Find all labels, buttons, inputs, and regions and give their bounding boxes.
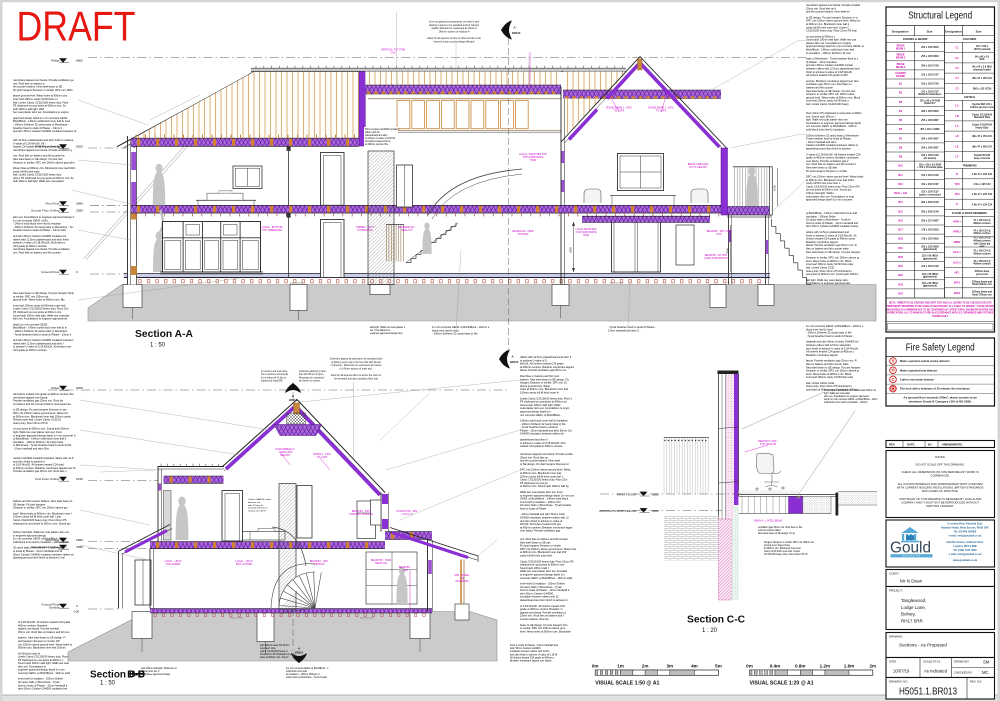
svg-text:BR013: BR013 xyxy=(512,31,521,35)
svg-text:(galvanised): (galvanised) xyxy=(923,276,937,279)
svg-text:skim 50mm Celotex GA4000 insul: skim 50mm Celotex GA4000 insulation bet xyxy=(18,687,67,691)
svg-text:Ground Floor Ceiling: Ground Floor Ceiling xyxy=(31,208,60,212)
svg-text:B11: B11 xyxy=(898,174,903,177)
svg-text:DRAFT: DRAFT xyxy=(17,3,136,50)
svg-text:NOTE: TIMBER TO BE GRADED AND: NOTE: TIMBER TO BE GRADED AND KEPT DRY A… xyxy=(889,302,992,305)
svg-text:1m: 1m xyxy=(617,663,624,668)
svg-text:400mm centres: 400mm centres xyxy=(973,263,991,266)
svg-text:LAM: LAM xyxy=(402,569,407,572)
svg-text:TO LAPS: TO LAPS xyxy=(614,110,625,113)
svg-text:B22: B22 xyxy=(898,274,903,277)
svg-text:+ 150 x 10 bolted plate: + 150 x 10 bolted plate xyxy=(917,166,943,169)
svg-text:at 900mm ctrs. Blockwork inner: at 900mm ctrs. Blockwork inner leaf xyxy=(764,547,801,550)
svg-text:counter battens. New ste: counter battens. New ste xyxy=(520,617,549,621)
svg-text:(galvanised): (galvanised) xyxy=(923,248,937,251)
svg-text:e-mail: info@goulduk.co.uk: e-mail: info@goulduk.co.uk xyxy=(949,535,982,538)
svg-text:New steel beam to SE design. F: New steel beam to SE design. Fix joist h… xyxy=(806,250,861,254)
svg-text:254 x 146 UB37: 254 x 146 UB37 xyxy=(921,137,939,140)
svg-text:B12: B12 xyxy=(898,183,903,186)
svg-text:in 140mm system of math and.: in 140mm system of math and. xyxy=(340,367,373,370)
svg-text:S: S xyxy=(892,359,895,364)
svg-text:BR013: BR013 xyxy=(289,398,298,402)
svg-text:KIT BRACING: KIT BRACING xyxy=(357,229,373,232)
svg-text:to engineer approved design: to engineer approved design xyxy=(141,673,171,676)
svg-text:solid block inner leaf b) Insu: solid block inner leaf b) Insulation - 1… xyxy=(13,540,69,544)
svg-text:LA: LA xyxy=(955,105,959,108)
svg-text:COMMENCED.: COMMENCED. xyxy=(930,474,950,478)
svg-text:deep concrete: deep concrete xyxy=(974,157,991,160)
svg-text:Designation: Designation xyxy=(945,30,962,34)
svg-text:x 150 x 47: x 150 x 47 xyxy=(401,513,413,516)
svg-text:B14: B14 xyxy=(898,201,903,204)
svg-text:B18: B18 xyxy=(898,238,903,241)
svg-text:fascia. Provide ventilation ga: fascia. Provide ventilation gap 25mm mi xyxy=(520,368,566,372)
svg-text:External Wall: External Wall xyxy=(610,281,623,284)
svg-text:skim set. Foundations to engin: skim set. Foundations to engineer approv… xyxy=(13,317,68,321)
svg-text:360mm centres: 360mm centres xyxy=(973,253,991,256)
svg-text:T2/3: T2/3 xyxy=(954,183,960,186)
svg-text:TOP TRIM 2M: TOP TRIM 2M xyxy=(760,443,776,446)
svg-text:fixed to studs d) Plaste: fixed to studs d) Plaste xyxy=(520,507,547,511)
svg-text:2 No x 195 C24: 2 No x 195 C24 xyxy=(974,183,992,186)
svg-text:UC37 (sashed): UC37 (sashed) xyxy=(974,48,991,51)
svg-text:0m: 0m xyxy=(592,663,599,668)
svg-text:b) Insulation - 100mm Dritherm: b) Insulation - 100mm Dritherm 3 xyxy=(286,673,320,676)
svg-text:PROJECT.: PROJECT. xyxy=(889,589,903,593)
svg-text:to SE design. Fix joist hanger: to SE design. Fix joist hangers Simpson … xyxy=(520,462,569,466)
svg-text:level. Weep holes at 900mm ctr: level. Weep holes at 900mm ctrs. Blockwo… xyxy=(520,629,572,633)
svg-text:Size: Size xyxy=(976,30,982,34)
svg-text:B24: B24 xyxy=(898,292,903,295)
svg-text:U-value of 0.18 W: U-value of 0.18 W xyxy=(248,511,266,513)
svg-text:152 x 152 UC30: 152 x 152 UC30 xyxy=(921,174,939,177)
svg-text:152 x 152 UC30: 152 x 152 UC30 xyxy=(921,83,939,86)
svg-text:1.2m: 1.2m xyxy=(820,663,830,668)
svg-text:Mains operated heat detector: Mains operated heat detector xyxy=(900,368,937,372)
svg-text:on posi joists at 600mm ctrs.: on posi joists at 600mm ctrs. Sound quil… xyxy=(824,389,877,392)
svg-text:254 x 146 UB43: 254 x 146 UB43 xyxy=(921,46,939,49)
svg-text:Hanifton House, Addision Row,: Hanifton House, Addision Row, xyxy=(946,541,983,544)
svg-text:b) Insulation - 100mm Dritherm: b) Insulation - 100mm Dritherm 32 cavi xyxy=(806,51,851,55)
svg-text:HF1: HF1 xyxy=(955,272,960,275)
svg-text:leaf 100mm cavity full fill br: leaf 100mm cavity full fill bric xyxy=(260,644,290,647)
svg-text:cavity batts c) Membrane - Tyv: cavity batts c) Membrane - Tyvek breath xyxy=(286,676,328,679)
svg-text:Section C-C: Section C-C xyxy=(687,615,745,626)
svg-text:0: 0 xyxy=(76,604,78,608)
svg-text:plasterboard and skim finish t: plasterboard and skim finish to achieve … xyxy=(13,556,65,560)
svg-text:COLUMNS: COLUMNS xyxy=(963,37,977,41)
svg-text:Fix joist hangers Simpson or s: Fix joist hangers Simpson or similar. xyxy=(806,169,848,173)
svg-text:breather fixed to studs d) Pla: breather fixed to studs d) Plaster - 13m… xyxy=(13,228,66,232)
svg-text:b/w a number permanently: b/w a number permanently xyxy=(261,373,289,376)
svg-text:TRIM: TRIM xyxy=(583,234,589,237)
svg-text:B23: B23 xyxy=(898,283,903,286)
svg-text:over: over xyxy=(979,245,984,248)
svg-text:Carbon monoxide detector: Carbon monoxide detector xyxy=(900,378,934,382)
svg-text:solid block inner leaf b) Insu: solid block inner leaf b) Insulation xyxy=(806,128,845,132)
svg-text:treated C24 grade at 400mm cen: treated C24 grade at 400mm centres. xyxy=(520,444,563,448)
svg-text:Outside: Outside xyxy=(49,606,60,610)
svg-text:Tanglewood,: Tanglewood, xyxy=(901,598,926,603)
svg-text:254 x 146 UB43: 254 x 146 UB43 xyxy=(921,55,939,58)
svg-text:GROUND FLOOR CEILING: GROUND FLOOR CEILING xyxy=(599,509,637,513)
svg-text:and felt counter batten: and felt counter batten xyxy=(758,529,782,532)
svg-text:Catnic CG110/100 heavy d: Catnic CG110/100 heavy d xyxy=(260,650,288,653)
svg-text:Lodge Lane,: Lodge Lane, xyxy=(901,605,926,610)
svg-text:WRITTEN CONSENT.: WRITTEN CONSENT. xyxy=(926,504,954,508)
svg-text:50mm Celotex GA4000 insulation: 50mm Celotex GA4000 insulation xyxy=(365,128,400,131)
svg-text:Harwich Heath, West Sussex, RH: Harwich Heath, West Sussex, RH16 1HE xyxy=(941,527,989,530)
svg-text:Tel: (01444) 452800: Tel: (01444) 452800 xyxy=(954,531,977,534)
svg-text:1 : 50: 1 : 50 xyxy=(150,343,166,349)
svg-text:CHECKED BY.: CHECKED BY. xyxy=(954,671,973,675)
svg-text:9300: 9300 xyxy=(76,386,83,390)
svg-text:Standard Duty: Standard Duty xyxy=(974,116,991,119)
svg-text:LC: LC xyxy=(955,125,959,128)
svg-text:between raft: between raft xyxy=(248,501,260,504)
svg-text:FRAMES & BEAMS: FRAMES & BEAMS xyxy=(903,37,928,41)
svg-text:178 x 152 UB19: 178 x 152 UB19 xyxy=(921,229,939,232)
svg-text:framed to ask you (meeting) ef: framed to ask you (meeting) effected xyxy=(434,40,475,43)
svg-text:B13a + 13b: B13a + 13b xyxy=(894,192,908,195)
svg-text:External Wall: External Wall xyxy=(360,617,373,620)
svg-text:skim 50mm Celotex GA4000 insul: skim 50mm Celotex GA4000 insulation betw… xyxy=(806,224,859,228)
svg-text:FABRICATION. ALL TO MANUFACTUR: FABRICATION. ALL TO MANUFACTURE IN ACCOR… xyxy=(887,312,994,315)
svg-text:MC: MC xyxy=(982,670,989,675)
svg-text:2 No: 2 No xyxy=(390,52,396,55)
svg-text:Welded/cranked/pos: Welded/cranked/pos xyxy=(918,93,942,96)
svg-text:SM: SM xyxy=(983,660,990,665)
svg-text:Steel 510mm ctrs: Steel 510mm ctrs xyxy=(972,283,992,286)
svg-text:Mains operated optical smoke d: Mains operated optical smoke detector xyxy=(900,359,950,363)
svg-text:2500: 2500 xyxy=(726,248,730,254)
svg-text:win before in system.: win before in system. xyxy=(299,380,321,383)
svg-text:plasterboard and skim finish t: plasterboard and skim finish to achieve xyxy=(806,147,851,151)
svg-text:-100: -100 xyxy=(73,609,79,613)
svg-text:2580: 2580 xyxy=(76,545,83,549)
svg-text:HC1-2: HC1-2 xyxy=(953,261,961,264)
svg-text:hangers Simpson or similar. DP: hangers Simpson or similar. DPC min 150m… xyxy=(764,541,814,544)
svg-text:2580: 2580 xyxy=(652,509,659,513)
svg-text:203 x 203 UC46: 203 x 203 UC46 xyxy=(921,210,939,213)
svg-text:ground level. Weep holes: ground level. Weep holes xyxy=(764,544,791,547)
svg-text:10/07/19: 10/07/19 xyxy=(893,669,910,674)
svg-text:C24 grade at 400mm centres.: C24 grade at 400mm centres. xyxy=(13,348,48,352)
svg-text:All timbers treated C24 grade: All timbers treated C24 grade at 400 xyxy=(806,73,848,77)
svg-text:WINDOW: WINDOW xyxy=(314,563,326,566)
svg-text:2m: 2m xyxy=(642,663,649,668)
svg-text:to be drawn all. At this to: to be drawn all. At this to xyxy=(261,376,287,379)
svg-text:approved design depth 1m min c: approved design depth 1m min concrete xyxy=(806,198,853,202)
svg-text:- Tyvek breather fixed to stud: - Tyvek breather fixed to studs d) Plast… xyxy=(806,334,854,338)
svg-text:Ridge: Ridge xyxy=(51,386,59,390)
svg-text:VISUAL SCALE 1:50 @ A1: VISUAL SCALE 1:50 @ A1 xyxy=(595,680,659,686)
svg-text:BEAM 4 - LINTEL BEAM: BEAM 4 - LINTEL BEAM xyxy=(754,520,782,523)
svg-text:Breather membrane lapped: Breather membrane lapped xyxy=(806,353,838,357)
svg-text:over fascia. Provide ventilati: over fascia. Provide ventilation gap xyxy=(520,529,561,533)
svg-text:Bolney,: Bolney, xyxy=(901,612,916,617)
svg-text:Breather membrane lapped over: Breather membrane lapped over fascia xyxy=(510,660,552,663)
svg-text:Simpson or similar. DPC min 15: Simpson or similar. DPC min 150mm above … xyxy=(13,506,68,510)
svg-text:RAF1: RAF1 xyxy=(954,282,961,285)
svg-text:External Wall: External Wall xyxy=(290,281,303,284)
svg-text:SHS: SHS xyxy=(980,58,985,61)
svg-text:1.6m: 1.6m xyxy=(844,663,854,668)
svg-text:Ridge: Ridge xyxy=(51,59,59,63)
svg-text:BR013: BR013 xyxy=(510,360,519,364)
svg-text:B10: B10 xyxy=(898,165,903,168)
svg-text:4 No 47 x 225 C24: 4 No 47 x 225 C24 xyxy=(972,203,993,206)
svg-text:Provide ventilation gap 25mm m: Provide ventilation gap 25mm min. Roof t… xyxy=(13,469,67,473)
svg-text:Ground Floor: Ground Floor xyxy=(41,270,59,274)
svg-text:LF: LF xyxy=(955,156,959,159)
svg-text:DO NOT SCALE OFF THIS DRAWING.: DO NOT SCALE OFF THIS DRAWING. xyxy=(916,463,965,467)
svg-text:Steel 275mm ctrs: Steel 275mm ctrs xyxy=(972,293,992,296)
svg-text:1500: 1500 xyxy=(773,185,777,191)
svg-text:outer leaf. Linte: outer leaf. Linte xyxy=(260,647,277,650)
svg-text:Celotex GA4000 insulat: Celotex GA4000 insulat xyxy=(248,498,271,501)
svg-text:152 x 152 UC37: 152 x 152 UC37 xyxy=(921,73,939,76)
svg-text:e-mail: info@goulduk.co.uk: e-mail: info@goulduk.co.uk xyxy=(949,553,982,556)
svg-text:TILE VERGE: TILE VERGE xyxy=(166,563,181,566)
svg-text:on battens and felt counter ba: on battens and felt counter battens. New… xyxy=(13,402,71,406)
svg-text:First Floor Ceiling: First Floor Ceiling xyxy=(35,477,60,481)
svg-text:203 x 127 UB37: 203 x 127 UB37 xyxy=(921,219,939,222)
svg-text:First Floor: First Floor xyxy=(46,202,60,206)
svg-text:LE: LE xyxy=(955,145,959,148)
svg-text:DRAWN BY.: DRAWN BY. xyxy=(954,660,970,664)
svg-text:HRR 1: HRR 1 xyxy=(953,221,961,224)
svg-text:DATE.: DATE. xyxy=(907,443,915,447)
svg-text:SUPPORT WINDOW: SUPPORT WINDOW xyxy=(349,513,373,516)
svg-text:H: H xyxy=(891,368,894,373)
svg-text:(thermal break): (thermal break) xyxy=(973,68,990,71)
svg-text:concrete GEN3. a) Brick/Block: concrete GEN3. a) Brick/Block - 140mm so… xyxy=(18,671,71,675)
svg-text:SEAL FIX: SEAL FIX xyxy=(402,229,413,232)
svg-text:DATE.: DATE. xyxy=(889,660,897,664)
svg-text:inner leaf 100mm cavity full f: inner leaf 100mm cavity full fill brick … xyxy=(806,375,854,379)
svg-text:0.8m: 0.8m xyxy=(795,663,805,668)
svg-text:As Indicated: As Indicated xyxy=(924,669,948,674)
svg-text:5200: 5200 xyxy=(76,145,83,149)
svg-text:Gould: Gould xyxy=(890,540,931,557)
svg-text:2 No 47 x 225 C24: 2 No 47 x 225 C24 xyxy=(972,173,993,176)
svg-text:TEMPORARY PROPPING TO BE USED: TEMPORARY PROPPING TO BE USED AS NECESSA… xyxy=(886,305,994,308)
svg-text:Heavy Duty: Heavy Duty xyxy=(975,126,989,129)
svg-text:2880: 2880 xyxy=(76,202,83,206)
svg-text:6150: 6150 xyxy=(76,477,83,481)
svg-text:supply and install BR.: supply and install BR. xyxy=(261,380,283,383)
svg-text:Rosemary be expressed: Rosemary be expressed xyxy=(299,376,325,379)
svg-text:plasterboard and skim finish t: plasterboard and skim finish to achieve … xyxy=(520,598,568,602)
svg-text:152 x 152 UC25: 152 x 152 UC25 xyxy=(921,265,939,268)
svg-text:membrane lapped over fascia. P: membrane lapped over fascia. Provide ven… xyxy=(13,148,73,152)
svg-text:ground level. Weep holes at 90: ground level. Weep holes at 900mm ctrs. … xyxy=(13,298,65,302)
svg-text:(galvanised): (galvanised) xyxy=(923,285,937,288)
svg-text:305 x 165 UB40: 305 x 165 UB40 xyxy=(921,110,939,113)
svg-text:Fire Safety Legend: Fire Safety Legend xyxy=(906,343,975,354)
svg-text:Collective glazing by pano: Collective glazing by pano xyxy=(299,370,326,373)
svg-text:2m: 2m xyxy=(869,663,876,668)
svg-text:DRAWING NO.: DRAWING NO. xyxy=(889,680,908,684)
svg-text:concrete GEN3. a) Brick/Block: concrete GEN3. a) Brick/Block - 140mm so… xyxy=(520,576,573,580)
svg-text:3No 47 x 150 C24: 3No 47 x 150 C24 xyxy=(972,135,992,138)
svg-text:heavy duty. Floor 22mm P5 ch: heavy duty. Floor 22mm P5 ch xyxy=(13,421,49,425)
svg-text:1 : 20: 1 : 20 xyxy=(702,628,718,634)
svg-text:CLIENT.: CLIENT. xyxy=(889,572,900,576)
svg-text:140mm system of window A: 140mm system of window A xyxy=(439,30,470,33)
svg-text:ventilation gap 25mm min. Roof: ventilation gap 25mm min. Roof tiles on … xyxy=(758,526,802,529)
svg-text:- 100mm Dritherm 32 cavity bat: - 100mm Dritherm 32 cavity batts c) Me xyxy=(432,332,478,336)
svg-text:to achieve U-value of 0.18 W/: to achieve U-value of 0.18 W/ xyxy=(365,137,395,140)
svg-text:RAF2: RAF2 xyxy=(954,292,961,295)
svg-text:Foundations to engineer approv: Foundations to engineer approved des xyxy=(806,281,851,285)
svg-text:- 13mm hardwall and skim 50m: - 13mm hardwall and skim 50m xyxy=(13,447,49,451)
svg-text:rafters with 12.: rafters with 12. xyxy=(365,131,380,134)
svg-text:H5051.1.BR013: H5051.1.BR013 xyxy=(899,686,957,698)
svg-text:be threaded and also intruding: be threaded and also intruding effect th… xyxy=(334,377,378,380)
svg-text:SCALE AT A1.: SCALE AT A1. xyxy=(923,660,941,664)
svg-text:25mm min. Roof tiles on batten: 25mm min. Roof tiles on battens and felt… xyxy=(18,630,70,634)
svg-text:BEAM 2: BEAM 2 xyxy=(896,57,906,60)
svg-text:with 12.5mm pl: with 12.5mm pl xyxy=(248,504,263,507)
svg-text:quilt 100mm laid tight. Walls: quilt 100mm laid tight. Walls two co xyxy=(141,667,178,670)
svg-text:B21: B21 xyxy=(898,265,903,268)
svg-text:plasterboard and skim: plasterboard and skim xyxy=(365,134,388,137)
svg-text:NOTES.: NOTES. xyxy=(935,455,946,459)
svg-text:TRIM: TRIM xyxy=(530,159,536,162)
svg-text:tight. Walls two coat plast: tight. Walls two coat plast xyxy=(824,392,850,395)
svg-text:posi joists at 600mm ctrs. Sou: posi joists at 600mm ctrs. Sound quilt 1… xyxy=(806,272,858,276)
svg-text:External Wall: External Wall xyxy=(230,617,243,620)
svg-text:LB: LB xyxy=(955,115,959,118)
svg-text:chipboard on posi joists at 60: chipboard on posi joists at 600mm ctrs. … xyxy=(13,521,71,525)
svg-text:400mm centres: 400mm centres xyxy=(973,232,991,235)
svg-text:HRR2: HRR2 xyxy=(954,241,961,244)
svg-text:Rolled 10°: Rolled 10° xyxy=(924,102,936,105)
svg-text:min concrete GEN3. a) Brick/Bl: min concrete GEN3. a) Brick/Block - xyxy=(520,413,562,417)
svg-text:B19: B19 xyxy=(898,247,903,250)
svg-text:CEILING: CEILING xyxy=(280,454,290,457)
svg-text:FRAME: FRAME xyxy=(896,75,905,78)
svg-text:REV. NO.: REV. NO. xyxy=(970,680,982,684)
svg-text:and skim 50mm Celotex GA4000 i: and skim 50mm Celotex GA4000 insulation … xyxy=(13,129,77,133)
svg-text:VISUAL SCALE 1:20 @ A1: VISUAL SCALE 1:20 @ A1 xyxy=(750,680,814,686)
svg-text:LINTELS: LINTELS xyxy=(964,95,975,99)
svg-text:Tel: (020) 7121 3500: Tel: (020) 7121 3500 xyxy=(953,549,977,552)
svg-text:2 London Row, Fairchild East,: 2 London Row, Fairchild East, xyxy=(947,523,983,526)
svg-text:TRIMMERS: TRIMMERS xyxy=(962,163,977,167)
svg-text:TOP BAR: TOP BAR xyxy=(518,233,529,236)
svg-text:0.4m: 0.4m xyxy=(770,663,780,668)
svg-text:Fire door with a minimum of 30: Fire door with a minimum of 30 minutes f… xyxy=(900,387,970,391)
svg-text:100mm cavity full fill brick o: 100mm cavity full fill brick outer le xyxy=(520,391,559,395)
svg-text:skim set. Foundations to engin: skim set. Foundations to engineer approv… xyxy=(824,395,869,398)
svg-text:B17: B17 xyxy=(898,229,903,232)
svg-text:joists at 600mm ctrs. Sound: joists at 600mm ctrs. Sound xyxy=(259,656,289,659)
svg-text:203 x 203 UC46: 203 x 203 UC46 xyxy=(921,201,939,204)
svg-text:Sections - As Proposed: Sections - As Proposed xyxy=(899,643,947,648)
svg-text:2580: 2580 xyxy=(76,209,83,213)
svg-text:(3x beams): (3x beams) xyxy=(924,157,937,160)
svg-text:CG110/100 heavy duty. Floor 22: CG110/100 heavy duty. Floor 22mm P5 chi xyxy=(764,553,808,556)
svg-text:London, WC1V 8RE: London, WC1V 8RE xyxy=(953,545,977,548)
svg-text:MEASURED AS A MINIMUM BUT TO B: MEASURED AS A MINIMUM BUT TO BE CONFIRME… xyxy=(887,308,995,311)
svg-text:GA4000 insulation between raft: GA4000 insulation between rafters wit xyxy=(520,432,564,436)
svg-text:leaf. Lintels Catnic CG110/100: leaf. Lintels Catnic CG110/100 heavy xyxy=(806,102,849,106)
svg-text:depth 1m min concrete GEN3. a): depth 1m min concrete GEN3. a) Brick/Blo… xyxy=(824,398,877,401)
svg-text:152 x 152 UC37: 152 x 152 UC37 xyxy=(921,183,939,186)
svg-text:engineer approved design dep: engineer approved design dep xyxy=(370,332,403,335)
svg-text:cavity full fill brick outer l: cavity full fill brick outer leaf. Linte… xyxy=(764,550,801,553)
svg-text:solid block inner leaf: solid block inner leaf xyxy=(286,670,307,673)
svg-text:(splice connection): (splice connection) xyxy=(919,194,941,197)
svg-text:T3/4: T3/4 xyxy=(954,193,960,196)
svg-text:OAK: OAK xyxy=(716,233,722,236)
svg-text:AMENDMENTS.: AMENDMENTS. xyxy=(942,443,963,447)
svg-text:BEAM TIE: BEAM TIE xyxy=(375,562,387,565)
svg-text:Section: Section xyxy=(90,670,126,681)
svg-text:B15: B15 xyxy=(898,210,903,213)
svg-text:TO LAPS: TO LAPS xyxy=(317,456,328,459)
svg-text:that with fitment of open: that with fitment of open xyxy=(299,373,324,376)
svg-text:Designation: Designation xyxy=(892,30,909,34)
svg-text:CG110/100 heavy duty. Floor 22: CG110/100 heavy duty. Floor 22mm P5 chip xyxy=(806,29,857,33)
svg-text:Size: Size xyxy=(927,30,933,34)
svg-text:Simpson or similar. DPC min 15: Simpson or similar. DPC min 150mm above … xyxy=(13,160,75,164)
svg-text:www.goulduk.co.uk: www.goulduk.co.uk xyxy=(953,558,978,562)
svg-text:BEAM 1: BEAM 1 xyxy=(896,48,906,51)
svg-text:13mm hardwall and skim 5: 13mm hardwall and skim 5 xyxy=(608,328,639,332)
svg-text:8800: 8800 xyxy=(76,59,83,63)
svg-text:B20: B20 xyxy=(898,256,903,259)
svg-text:AND CODES OF PRACTICE.: AND CODES OF PRACTICE. xyxy=(922,489,959,493)
svg-text:2 No 47 x 200 C24: 2 No 47 x 200 C24 xyxy=(972,193,993,196)
svg-text:254 x 146 UB37: 254 x 146 UB37 xyxy=(921,146,939,149)
svg-text:2No 47 x 150 C24: 2No 47 x 150 C24 xyxy=(972,77,992,80)
svg-text:- Tyvek breather fixed to stud: - Tyvek breather fixed to studs d) Plast… xyxy=(13,332,72,336)
svg-text:178 x 152 UB19: 178 x 152 UB19 xyxy=(921,238,939,241)
svg-text:Fix joist hangers Simpson or s: Fix joist hangers Simpson or similar. DP… xyxy=(13,88,73,92)
svg-text:and skim finish to ac: and skim finish to ac xyxy=(248,507,269,510)
svg-text:BR013: BR013 xyxy=(295,650,304,654)
svg-text:Floor 22mm P5 chipboard on pos: Floor 22mm P5 chipboard on posi xyxy=(260,653,295,656)
svg-text:B16: B16 xyxy=(898,219,903,222)
svg-text:to must be and work done: to must be and work done xyxy=(261,370,288,373)
svg-text:(LAM) SUPPORTING: (LAM) SUPPORTING xyxy=(704,257,728,260)
svg-text:solid block inner leaf b) Insu: solid block inner leaf b) Insulation - 1… xyxy=(824,401,868,404)
svg-text:SHS x 152 UC30: SHS x 152 UC30 xyxy=(973,87,992,90)
svg-text:LD: LD xyxy=(955,135,959,138)
svg-text:Structural Legend: Structural Legend xyxy=(908,11,972,22)
svg-text:0: 0 xyxy=(76,270,78,274)
svg-text:cavity full fill brick outer l: cavity full fill brick outer leaf. xyxy=(520,554,553,558)
svg-text:3m: 3m xyxy=(666,663,673,668)
svg-text:HC1-1: HC1-1 xyxy=(953,251,961,254)
svg-text:two coat plaster skim set. Fou: two coat plaster skim set. Foundations t… xyxy=(13,110,69,114)
svg-text:BEAM 3: BEAM 3 xyxy=(896,66,906,69)
svg-text:Section A-A: Section A-A xyxy=(135,329,193,340)
svg-text:TOP TIMBER DEL: TOP TIMBER DEL xyxy=(262,229,283,232)
svg-text:2562: 2562 xyxy=(569,247,573,253)
svg-text:254 x 146 UB37: 254 x 146 UB37 xyxy=(921,119,939,122)
svg-text:minimum Grade B Category LD3 o: minimum Grade B Category LD3 of BS 5839. xyxy=(909,400,972,404)
svg-text:2880: 2880 xyxy=(76,538,83,542)
svg-text:0m: 0m xyxy=(746,663,753,668)
svg-text:DRAWING.: DRAWING. xyxy=(889,635,903,639)
svg-text:HRR 2: HRR 2 xyxy=(953,231,961,234)
svg-text:AT ITS CEILING: AT ITS CEILING xyxy=(689,166,707,169)
